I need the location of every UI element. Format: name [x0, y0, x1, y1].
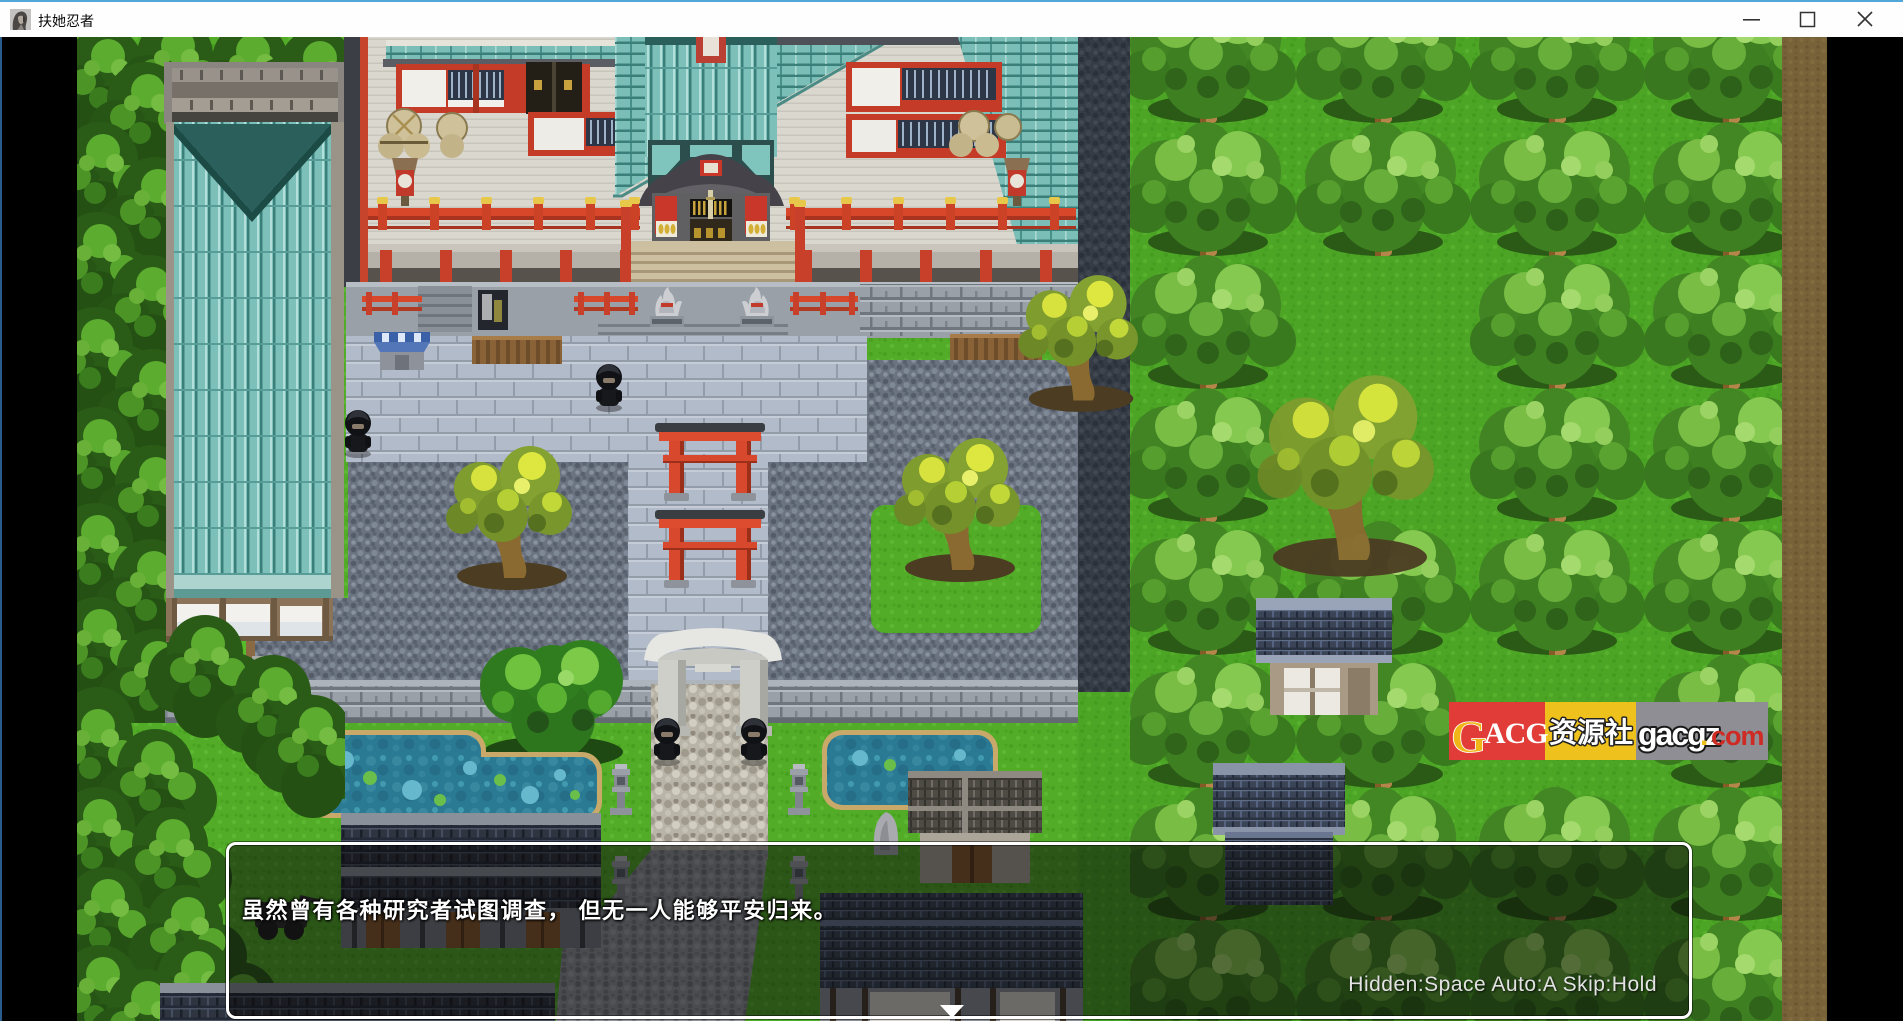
svg-text:资源社: 资源社 [1549, 717, 1633, 748]
svg-text:G: G [1451, 711, 1487, 762]
svg-text:ACG: ACG [1484, 717, 1548, 750]
svg-text:com: com [1711, 721, 1764, 751]
svg-text:.: . [1700, 719, 1708, 752]
